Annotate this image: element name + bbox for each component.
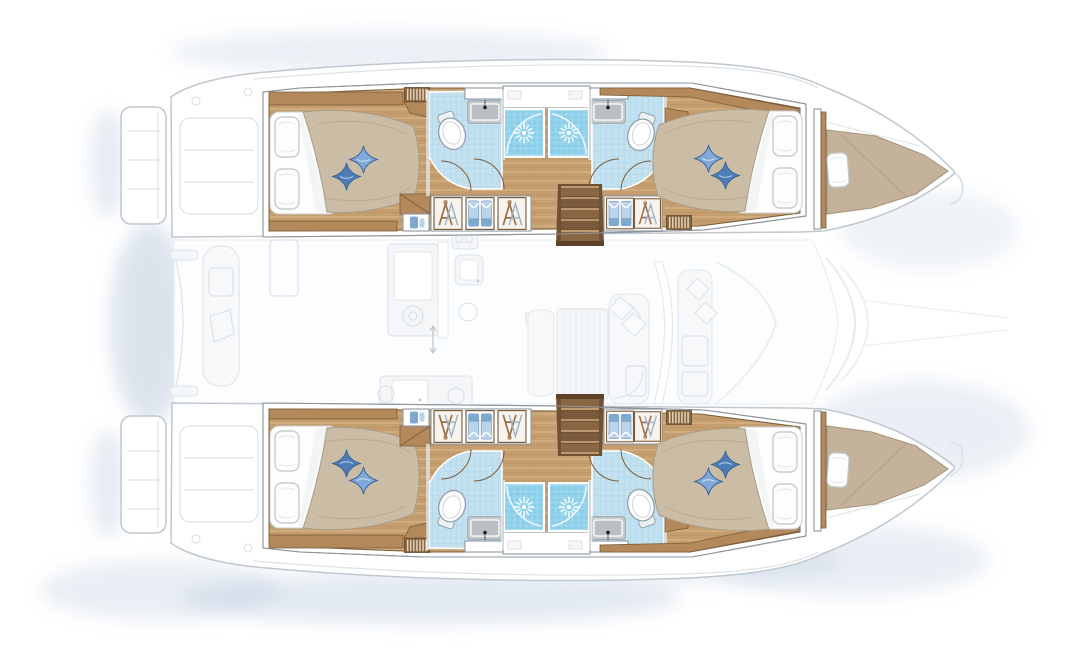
catamaran-layout-svg [0,0,1073,647]
davit-ghost [170,250,198,260]
water-shadow [40,560,280,620]
dining-ghost [526,294,649,404]
davit-ghost [170,386,198,396]
bridle-lines [862,300,1008,346]
cockpit-bench-ghost [203,246,239,386]
bridgedeck-outline [174,240,838,404]
galley-sink-ghost [392,380,428,406]
port-hull [121,60,954,247]
sliding-door-ghost [438,242,448,338]
counter-top-ghost [394,252,432,300]
sink-basin-ghost [460,260,478,280]
faucet-dot [477,280,480,283]
faucet-dot [419,399,422,402]
bench-ghost [528,310,554,396]
catamaran-floor-plan-page [0,0,1073,647]
